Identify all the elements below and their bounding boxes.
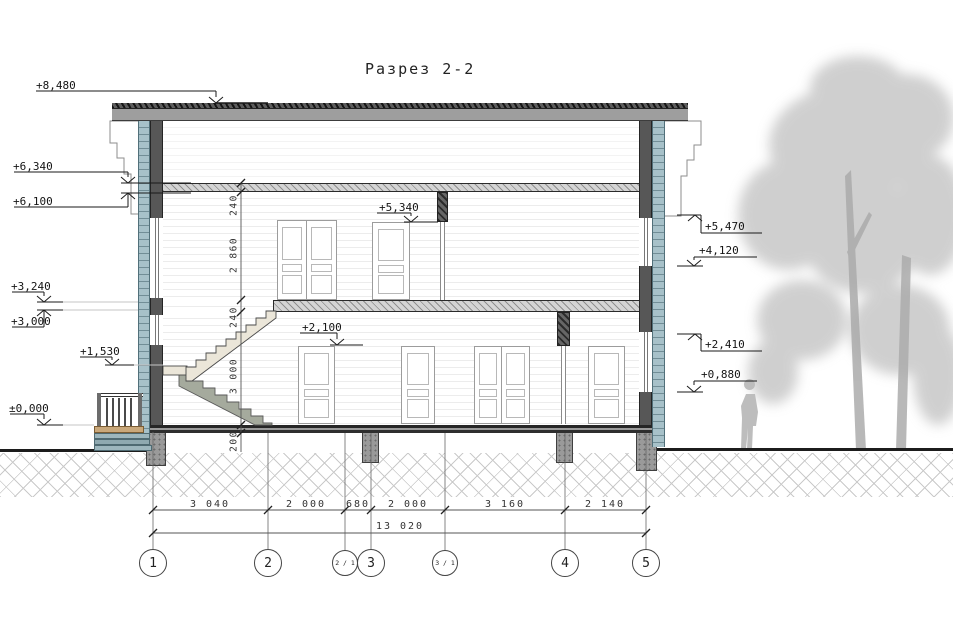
porch-post — [97, 393, 101, 426]
elevation-marker: +4,120 — [699, 244, 739, 257]
porch-post — [138, 393, 142, 426]
window-glazing — [644, 332, 648, 392]
total-dimension-label: 13 020 — [376, 521, 424, 532]
door-panel — [407, 389, 429, 397]
dimension-label: 240 — [229, 306, 240, 328]
axis-bubble: 2 / 1 — [332, 550, 358, 576]
axis-bubble: 4 — [551, 549, 579, 577]
porch-baluster — [112, 398, 114, 426]
partition-lintel — [557, 312, 570, 346]
right-wall — [639, 392, 652, 425]
door-panel — [479, 389, 497, 397]
door-panel — [282, 227, 302, 260]
porch-baluster — [118, 398, 120, 426]
axis-bubble: 5 — [632, 549, 660, 577]
left-wall — [150, 298, 163, 315]
ground-floor-structure — [150, 425, 652, 433]
right-wall-window — [639, 218, 652, 266]
dimension-label: 3 000 — [229, 358, 240, 394]
section-drawing: Разрез 2-2 +8,480 +6,340 +6,100 +3,240 +… — [0, 0, 953, 621]
gable-outline-left — [110, 121, 140, 214]
elevation-marker: +0,880 — [701, 368, 741, 381]
door-panel — [594, 353, 619, 385]
left-wall-window — [150, 315, 163, 345]
axis-bubble: 1 — [139, 549, 167, 577]
tree-trunks — [845, 170, 911, 450]
single-door — [588, 346, 625, 424]
elevation-marker: +2,100 — [302, 321, 342, 334]
door-panel — [479, 353, 497, 385]
door-panel — [311, 227, 332, 260]
porch-rail-top — [97, 393, 143, 397]
dimension-label: 3 160 — [485, 499, 525, 510]
partition-wall — [440, 222, 445, 300]
elevation-marker: +3,000 — [11, 315, 51, 328]
elevation-marker: +8,480 — [36, 79, 76, 92]
door-panel — [378, 229, 404, 261]
door-panel — [506, 353, 525, 385]
ground-line-right — [656, 448, 953, 451]
double-door — [474, 346, 530, 424]
partition-wall — [561, 346, 566, 424]
dimension-label: 2 140 — [585, 499, 625, 510]
ground-hatch — [0, 453, 953, 497]
right-wall — [639, 121, 652, 218]
elevation-marker: +6,340 — [13, 160, 53, 173]
porch-baluster — [130, 398, 132, 426]
door-panel — [304, 399, 329, 418]
door-panel — [506, 399, 525, 418]
drawing-title: Разрез 2-2 — [365, 60, 475, 78]
door-panel — [594, 389, 619, 397]
right-wall-window — [639, 332, 652, 392]
dimension-label: 240 — [229, 194, 240, 216]
window-glazing — [155, 218, 159, 298]
left-wall-cladding — [138, 121, 150, 433]
dimension-label: 680 — [346, 499, 370, 510]
window-glazing — [155, 315, 159, 345]
door-panel — [407, 353, 429, 385]
dimension-label: 200 — [229, 430, 240, 452]
single-door — [372, 222, 410, 300]
dimension-label: 2 000 — [286, 499, 326, 510]
axis-bubble: 3 — [357, 549, 385, 577]
elevation-marker: +5,340 — [379, 201, 419, 214]
left-wall-window — [150, 218, 163, 298]
porch-baluster — [124, 398, 126, 426]
door-panel — [407, 399, 429, 418]
axis-bubble: 3 / 1 — [432, 550, 458, 576]
door-panel — [304, 389, 329, 397]
door-panel — [304, 353, 329, 385]
right-wall — [639, 266, 652, 332]
interfloor-slab — [273, 300, 639, 312]
dimension-label: 2 860 — [229, 237, 240, 273]
foundation-pier — [362, 432, 379, 463]
right-wall-cladding — [652, 121, 665, 447]
elevation-marker: +6,100 — [13, 195, 53, 208]
dimension-label: 2 000 — [388, 499, 428, 510]
axis-bubble: 2 — [254, 549, 282, 577]
stairwell-gap — [163, 300, 273, 312]
door-panel — [378, 275, 404, 294]
dimension-label: 3 040 — [190, 499, 230, 510]
person-silhouette — [741, 379, 758, 449]
elevation-marker: +1,530 — [80, 345, 120, 358]
double-door — [277, 220, 337, 300]
roof-band — [112, 108, 688, 121]
door-panel — [282, 264, 302, 272]
window-glazing — [644, 218, 648, 266]
left-wall — [150, 345, 163, 425]
door-panel — [479, 399, 497, 418]
porch-deck — [94, 426, 144, 433]
door-panel — [378, 265, 404, 273]
single-door — [298, 346, 335, 424]
foundation-pier — [556, 432, 573, 463]
porch-baluster — [106, 398, 108, 426]
door-panel — [506, 389, 525, 397]
single-door — [401, 346, 435, 424]
door-panel — [311, 264, 332, 272]
elevation-marker: +5,470 — [705, 220, 745, 233]
attic-space — [163, 121, 639, 183]
door-panel — [311, 275, 332, 294]
elevation-marker: +3,240 — [11, 280, 51, 293]
door-panel — [282, 275, 302, 294]
porch-step — [94, 445, 152, 451]
elevation-marker: ±0,000 — [9, 402, 49, 415]
elevation-marker: +2,410 — [705, 338, 745, 351]
left-wall — [150, 121, 163, 218]
partition-lintel — [437, 192, 448, 222]
attic-floor-slab — [163, 183, 639, 192]
tree-foliage — [738, 56, 953, 425]
door-panel — [594, 399, 619, 418]
